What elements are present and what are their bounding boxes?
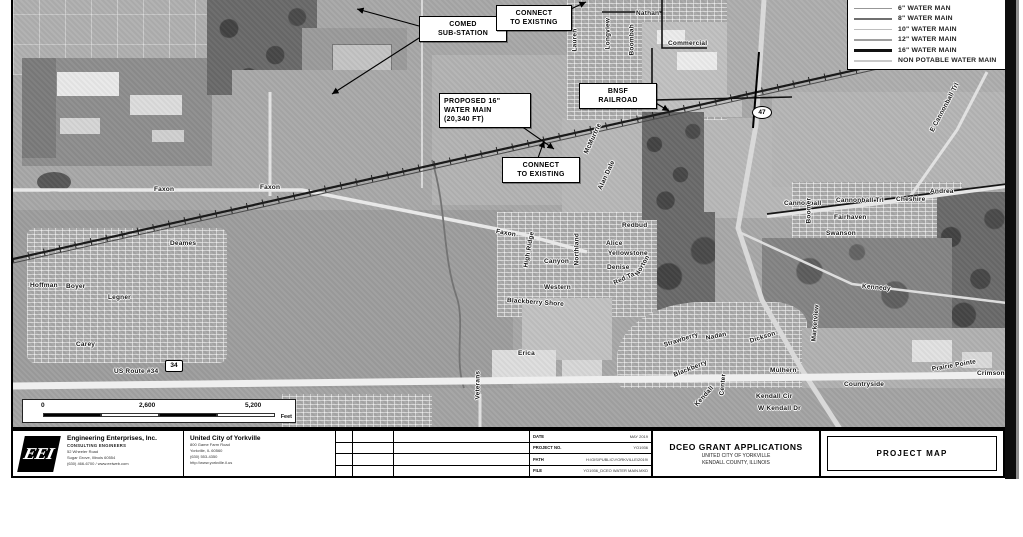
street-label: Strawberry [663, 331, 699, 349]
legend-label: 6" WATER MAN [898, 5, 951, 12]
street-label: Kendall [693, 385, 715, 408]
legend-line-sample [854, 49, 892, 52]
street-label: Kennedy [862, 283, 891, 292]
legend-item: 8" WATER MAIN [854, 14, 1002, 25]
info-row: FILE YO1936_DCEO WATER MAIN.MXD [530, 466, 651, 477]
project-subtitle: UNITED CITY OF YORKVILLE [702, 453, 771, 459]
callout-proposed-water-main: PROPOSED 16" WATER MAIN (20,340 FT) [439, 93, 531, 128]
title-block: EEI Engineering Enterprises, Inc. CONSUL… [11, 429, 1005, 478]
legend-line-sample [854, 8, 892, 9]
street-label: Alice [606, 240, 623, 247]
revision-table [335, 431, 529, 476]
street-label: Legner [108, 294, 131, 301]
scale-unit: Feet [281, 414, 292, 420]
street-label: Western [544, 284, 571, 291]
street-label: Dickson [749, 330, 777, 345]
scale-mid: 2,600 [139, 402, 155, 409]
legend-item: 12" WATER MAIN [854, 35, 1002, 46]
info-label: PROJECT NO. [533, 445, 561, 450]
street-label: E Cannonball Trl [929, 82, 961, 133]
street-label: Kendall Cir [756, 393, 793, 400]
street-label: Nathan [636, 10, 659, 17]
legend-label: 16" WATER MAIN [898, 47, 957, 54]
engineer-address: (630) 466-6700 / www.eeiweb.com [67, 461, 181, 467]
street-label: Prairie Pointe [931, 358, 976, 373]
project-title-block: DCEO GRANT APPLICATIONS UNITED CITY OF Y… [651, 431, 821, 476]
street-label: Boomer [806, 198, 813, 224]
info-row: PATH H:\GIS\PUBLIC\YORKVILLE\2019\ [530, 454, 651, 466]
street-label: US Route #34 [114, 368, 158, 375]
street-label: Northland [574, 233, 581, 266]
street-label: Andrea [930, 188, 954, 195]
street-label: Swanson [826, 230, 856, 237]
revision-row [336, 431, 529, 443]
street-label: Faxon [154, 186, 174, 193]
client-block: United City of Yorkville 800 Game Farm R… [183, 431, 335, 476]
legend-item: NON POTABLE WATER MAIN [854, 56, 1002, 67]
sheet-title: PROJECT MAP [827, 436, 997, 471]
street-label: Nadan [705, 331, 727, 342]
callout-connect-existing-mid: CONNECT TO EXISTING [502, 157, 580, 183]
eei-logo: EEI [17, 436, 61, 472]
aerial-map: FaxonFaxonFaxonHoffmanBoyerLegnerDeamesC… [11, 0, 1005, 429]
street-label: McMurtrie [583, 122, 603, 155]
scanned-project-map-page: FaxonFaxonFaxonHoffmanBoyerLegnerDeamesC… [0, 0, 1023, 537]
info-value: H:\GIS\PUBLIC\YORKVILLE\2019\ [586, 457, 648, 462]
scale-segment [217, 413, 275, 417]
street-label: Boombah [629, 24, 636, 55]
revision-row [336, 454, 529, 466]
street-label: Mulhern [770, 367, 797, 374]
callout-comed-substation: COMED SUB-STATION [419, 16, 507, 42]
legend-label: 10" WATER MAIN [898, 26, 957, 33]
street-label: Crimson [977, 370, 1005, 377]
scale-bar: 0 2,600 5,200 Feet [22, 399, 296, 423]
street-label: Deames [170, 240, 196, 247]
street-label: Yellowstone [608, 250, 648, 257]
page-edge [1016, 0, 1019, 479]
street-label: Norton [634, 254, 651, 277]
street-label: Blackberry [673, 359, 709, 379]
street-label: Faxon [495, 228, 516, 238]
scale-segment [43, 413, 101, 417]
scale-segment [159, 413, 217, 417]
engineer-block: Engineering Enterprises, Inc. CONSULTING… [65, 431, 183, 476]
street-label: High Ridge [523, 231, 536, 268]
street-label: Lauren [572, 29, 579, 52]
legend-label: 8" WATER MAIN [898, 15, 953, 22]
eei-logo-cell: EEI [13, 431, 65, 476]
water-main-legend: 6" WATER MAN8" WATER MAIN10" WATER MAIN1… [847, 0, 1005, 70]
legend-line-sample [854, 60, 892, 62]
callout-connect-existing-top: CONNECT TO EXISTING [496, 5, 572, 31]
info-label: FILE [533, 468, 542, 473]
revision-row [336, 466, 529, 477]
street-label: Center [719, 373, 728, 395]
route-34-shield: 34 [165, 360, 183, 372]
legend-item: 16" WATER MAIN [854, 45, 1002, 56]
info-label: DATE [533, 434, 544, 439]
project-title: DCEO GRANT APPLICATIONS [669, 442, 802, 452]
legend-line-sample [854, 39, 892, 41]
street-label: Redbud [622, 222, 647, 229]
street-label: Faxon [260, 184, 280, 191]
engineer-tagline: CONSULTING ENGINEERS [67, 443, 181, 448]
page-edge-shadow [1005, 0, 1016, 479]
street-label: Boyer [66, 283, 85, 290]
info-value: MAY 2019 [630, 434, 648, 439]
info-row: PROJECT NO. YO1936 [530, 443, 651, 455]
info-value: YO1936_DCEO WATER MAIN.MXD [583, 468, 648, 473]
street-label: Canyon [544, 258, 569, 265]
engineer-name: Engineering Enterprises, Inc. [67, 435, 181, 442]
street-label: Fairhaven [834, 214, 867, 221]
scale-end: 5,200 [245, 402, 261, 409]
street-label: W Kendall Dr [758, 405, 801, 412]
street-label: Marketview [811, 304, 821, 342]
sheet-title-cell: PROJECT MAP [821, 431, 1003, 476]
street-label: Commercial [668, 40, 707, 47]
legend-line-sample [854, 29, 892, 30]
street-label: Blackberry Shore [507, 297, 564, 308]
callout-bnsf-railroad: BNSF RAILROAD [579, 83, 657, 109]
street-label: Cannonball Trl [836, 197, 884, 204]
legend-item: 6" WATER MAN [854, 3, 1002, 14]
client-name: United City of Yorkville [190, 435, 333, 442]
info-row: DATE MAY 2019 [530, 431, 651, 443]
route-47-shield: 47 [752, 106, 772, 119]
street-label: Denise [607, 264, 630, 271]
info-value: YO1936 [633, 445, 648, 450]
street-label: Cheshire [896, 196, 925, 203]
street-label: Hoffman [30, 282, 58, 289]
client-address: http://www.yorkville.il.us [190, 460, 333, 466]
scale-start: 0 [41, 402, 45, 409]
street-label: Erica [518, 350, 535, 357]
legend-label: NON POTABLE WATER MAIN [898, 57, 997, 64]
legend-line-sample [854, 18, 892, 20]
street-label: Longview [605, 18, 612, 50]
street-label: Alan Dale [597, 160, 617, 191]
street-label: Cannonball [784, 200, 821, 207]
drawing-info-table: DATE MAY 2019 PROJECT NO. YO1936 PATH H:… [529, 431, 651, 476]
street-label: Countryside [844, 381, 884, 388]
info-label: PATH [533, 457, 544, 462]
street-label: Carey [76, 341, 95, 348]
scale-segment [101, 413, 159, 417]
project-subtitle: KENDALL COUNTY, ILLINOIS [702, 460, 770, 466]
street-label: Veterans [475, 371, 482, 400]
revision-row [336, 443, 529, 455]
legend-label: 12" WATER MAIN [898, 36, 957, 43]
legend-item: 10" WATER MAIN [854, 24, 1002, 35]
